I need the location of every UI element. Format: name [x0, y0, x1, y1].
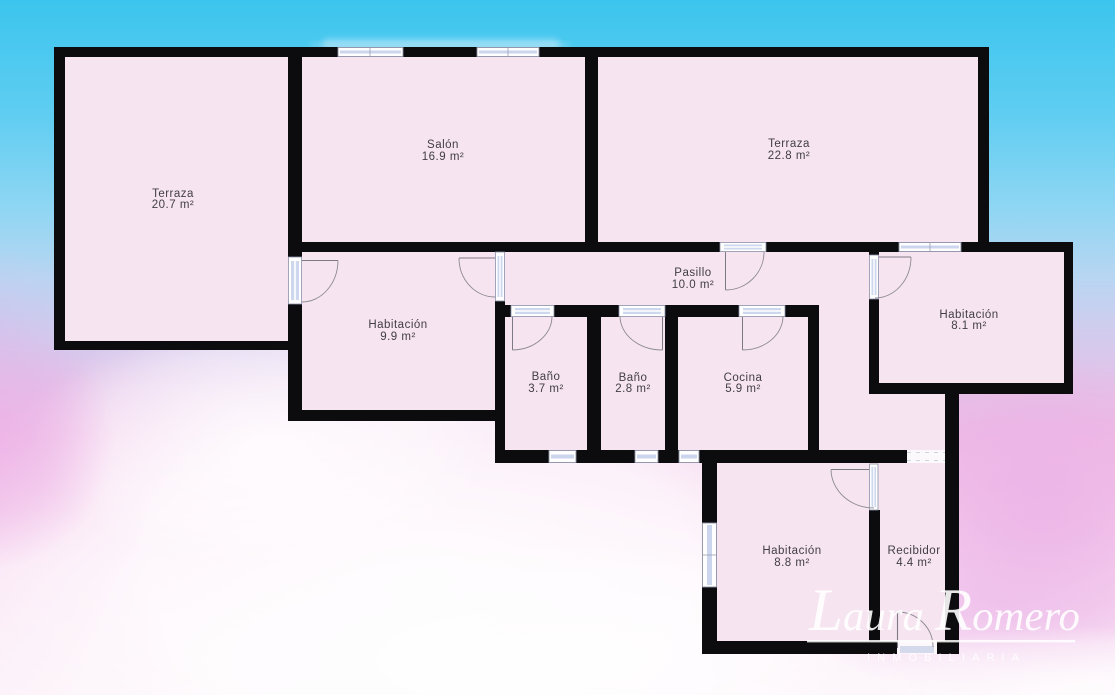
svg-text:Pasillo: Pasillo [674, 267, 711, 279]
svg-text:8.1 m²: 8.1 m² [951, 320, 987, 332]
svg-text:8.8 m²: 8.8 m² [774, 557, 810, 569]
svg-text:Recibidor: Recibidor [887, 545, 940, 557]
svg-text:Baño: Baño [532, 371, 561, 383]
svg-text:16.9 m²: 16.9 m² [422, 151, 465, 163]
svg-text:9.9 m²: 9.9 m² [380, 331, 416, 343]
svg-text:Terraza: Terraza [768, 138, 810, 150]
svg-text:Salón: Salón [427, 139, 459, 151]
svg-text:3.7 m²: 3.7 m² [528, 383, 564, 395]
svg-text:2.8 m²: 2.8 m² [615, 383, 651, 395]
svg-text:10.0 m²: 10.0 m² [672, 279, 715, 291]
svg-text:22.8 m²: 22.8 m² [768, 150, 811, 162]
svg-text:4.4 m²: 4.4 m² [896, 557, 932, 569]
svg-text:Habitación: Habitación [762, 545, 821, 557]
svg-text:Habitación: Habitación [368, 319, 427, 331]
svg-text:20.7 m²: 20.7 m² [152, 199, 195, 211]
svg-text:5.9 m²: 5.9 m² [725, 383, 761, 395]
